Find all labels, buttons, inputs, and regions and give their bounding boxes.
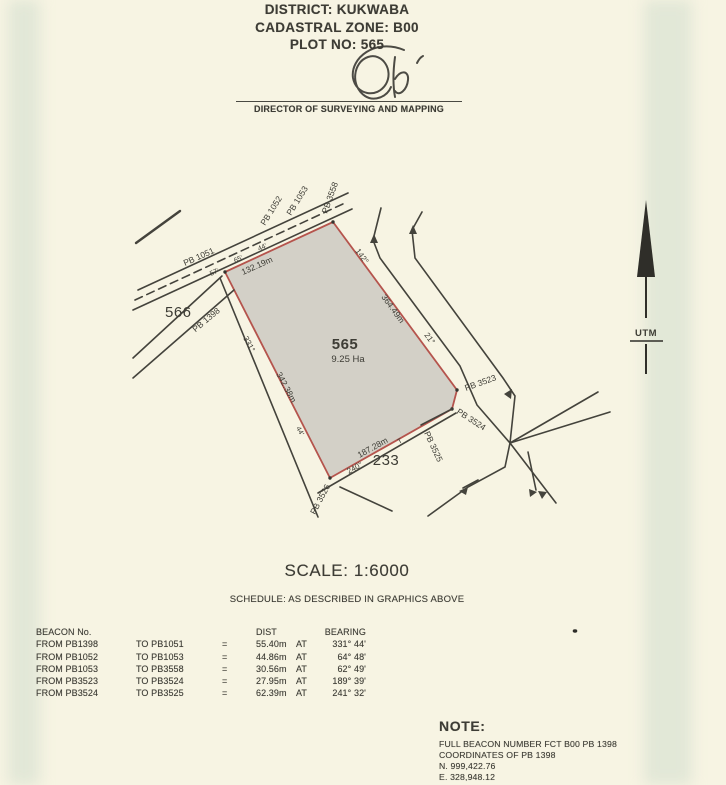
table-cell-bearing: 64° 48': [314, 651, 366, 663]
table-cell-to: TO PB3525: [136, 687, 222, 699]
table-cell-from: FROM PB1398: [36, 638, 136, 650]
col-header-beacon: BEACON No.: [36, 626, 136, 638]
plot-area-565: 9.25 Ha: [331, 354, 365, 365]
table-cell-from: FROM PB1053: [36, 663, 136, 675]
table-cell-from: FROM PB3524: [36, 687, 136, 699]
beacon-label-pb3524: PB 3524: [455, 406, 488, 432]
bearing-label-331: 331°: [241, 335, 257, 354]
table-cell-eq: =: [222, 651, 250, 663]
beacon-label-pb1052: PB 1052: [258, 194, 284, 227]
bearing-label-21: 21°: [422, 331, 436, 346]
note-line: FULL BEACON NUMBER FCT B00 PB 1398: [439, 739, 617, 750]
table-cell-at: AT: [296, 675, 314, 687]
table-cell-eq: =: [222, 687, 250, 699]
table-cell-dist: 30.56m: [250, 663, 296, 675]
table-cell-at: AT: [296, 663, 314, 675]
beacon-label-pb1398: PB 1398: [190, 305, 222, 334]
table-cell-at: AT: [296, 638, 314, 650]
tick-label-44-top: 44': [257, 243, 268, 253]
note-line: N. 999,422.76: [439, 761, 617, 772]
table-cell-from: FROM PB1052: [36, 651, 136, 663]
table-cell-at: AT: [296, 687, 314, 699]
tick-label-44-west: 44': [294, 426, 304, 437]
scale-text: SCALE: 1:6000: [0, 561, 694, 581]
beacon-label-pb3525: PB 3525: [422, 430, 445, 464]
table-cell-to: TO PB3524: [136, 675, 222, 687]
table-cell-dist: 55.40m: [250, 638, 296, 650]
col-header-bearing: BEARING: [314, 626, 366, 638]
table-cell-bearing: 241° 32': [314, 687, 366, 699]
plot-number-233: 233: [373, 452, 400, 469]
schedule-caption: SCHEDULE: AS DESCRIBED IN GRAPHICS ABOVE: [0, 594, 694, 605]
table-cell-eq: =: [222, 675, 250, 687]
note-title: NOTE:: [439, 718, 486, 734]
table-cell-eq: =: [222, 663, 250, 675]
table-cell-bearing: 62° 49': [314, 663, 366, 675]
tick-label-57: 57': [209, 268, 220, 278]
note-body: FULL BEACON NUMBER FCT B00 PB 1398 COORD…: [439, 739, 617, 783]
table-cell-bearing: 331° 44': [314, 638, 366, 650]
table-cell-from: FROM PB3523: [36, 675, 136, 687]
scan-speck: [573, 629, 578, 632]
beacon-label-pb3523: PB 3523: [463, 372, 497, 393]
north-arrow: UTM: [630, 200, 663, 374]
table-cell-bearing: 189° 39': [314, 675, 366, 687]
plot-number-565: 565: [332, 336, 359, 353]
note-line: COORDINATES OF PB 1398: [439, 750, 617, 761]
table-cell-dist: 44.86m: [250, 651, 296, 663]
utm-label: UTM: [635, 328, 657, 339]
beacon-label-pb3526: PB 3526: [308, 482, 332, 516]
scanned-survey-plan-page: { "header": { "district": "DISTRICT: KUK…: [0, 0, 726, 785]
table-cell-to: TO PB1051: [136, 638, 222, 650]
col-header-dist: DIST: [250, 626, 296, 638]
table-cell-eq: =: [222, 638, 250, 650]
schedule-table: BEACON No. DIST BEARING FROM PB1398 TO P…: [36, 626, 366, 700]
table-cell-dist: 62.39m: [250, 687, 296, 699]
signature-scrawl: [353, 46, 423, 98]
plot-number-566: 566: [165, 304, 192, 321]
note-line: E. 328,948.12: [439, 772, 617, 783]
table-cell-at: AT: [296, 651, 314, 663]
table-cell-dist: 27.95m: [250, 675, 296, 687]
table-cell-to: TO PB3558: [136, 663, 222, 675]
table-cell-to: TO PB1053: [136, 651, 222, 663]
